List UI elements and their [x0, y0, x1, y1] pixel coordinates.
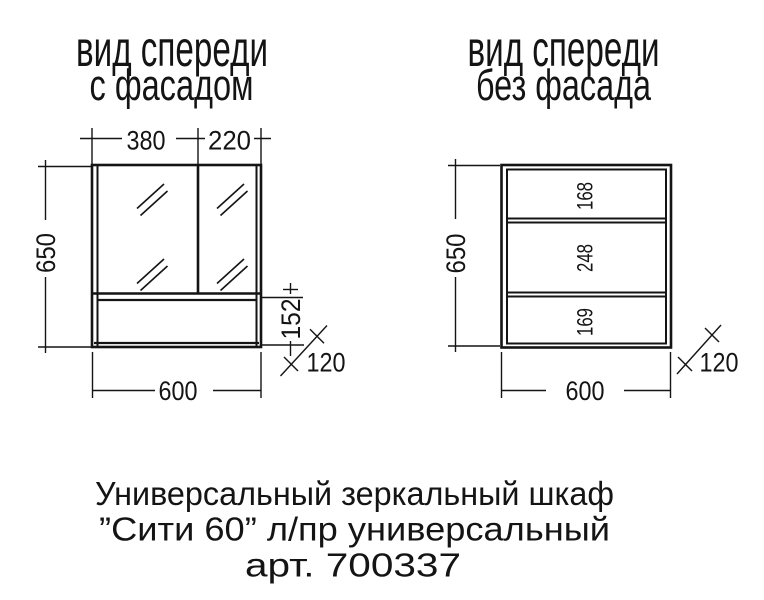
svg-text:Универсальный зеркальный шкаф: Универсальный зеркальный шкаф [95, 475, 614, 512]
svg-text:арт. 700337: арт. 700337 [245, 547, 461, 584]
svg-text:120: 120 [307, 348, 346, 378]
svg-text:220: 220 [208, 126, 251, 156]
svg-text:600: 600 [159, 376, 198, 406]
svg-text:248: 248 [573, 244, 598, 272]
svg-text:600: 600 [566, 376, 605, 406]
svg-text:650: 650 [441, 234, 471, 274]
svg-text:169: 169 [573, 308, 598, 336]
svg-text:”Сити 60” л/пр универсальный: ”Сити 60” л/пр универсальный [99, 511, 610, 548]
svg-text:120: 120 [700, 348, 739, 378]
svg-text:380: 380 [127, 126, 166, 156]
svg-text:без фасада: без фасада [476, 61, 651, 110]
svg-text:168: 168 [573, 182, 598, 210]
svg-text:152: 152 [276, 299, 306, 340]
svg-text:650: 650 [31, 233, 61, 273]
svg-text:с фасадом: с фасадом [90, 61, 254, 110]
